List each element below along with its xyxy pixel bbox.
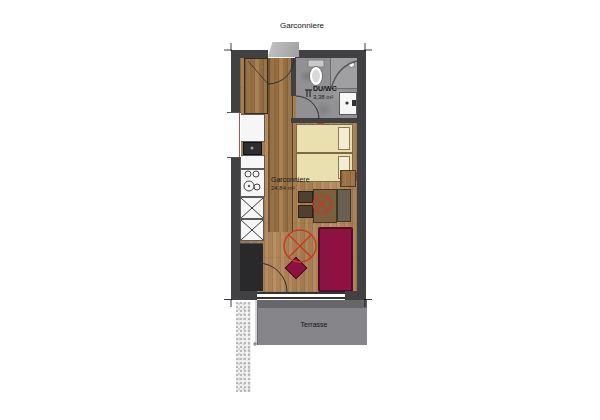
cooktop <box>243 142 262 155</box>
wall-bottom-right <box>345 291 366 300</box>
chair-1 <box>298 191 313 203</box>
sideboard <box>337 189 351 222</box>
shower-head-icon <box>348 61 355 68</box>
wall-bath-vertical <box>291 58 296 96</box>
kitchen-counter-upper <box>240 114 265 142</box>
nightstand <box>340 170 356 187</box>
wall-left-lower <box>231 158 240 300</box>
sofa <box>318 227 353 292</box>
wall-top-right <box>295 50 366 58</box>
kitchen-appliance-2 <box>240 219 264 241</box>
kitchen-counter-mid <box>240 155 265 169</box>
exterior-wall-hatch <box>236 302 251 392</box>
dining-table <box>313 189 337 223</box>
terrace-label: Terrasse <box>290 321 338 328</box>
main-room-area: 24,84 m² <box>271 185 295 191</box>
entrance-landing <box>268 42 299 57</box>
entry-wood-band <box>268 58 293 232</box>
bed-1-pillow <box>338 127 350 150</box>
main-room-label: Garconniere <box>271 176 310 183</box>
bathroom-label: DU/WC <box>313 85 337 92</box>
wall-bath-horizontal <box>291 118 357 123</box>
floor-plan-page: Garconniere <box>0 0 600 420</box>
kitchen-appliance-1 <box>240 197 264 219</box>
window-terrace-door <box>257 292 345 299</box>
bathroom-area: 3,38 m² <box>313 94 333 100</box>
wardrobe <box>244 58 268 114</box>
wall-left-upper <box>231 50 240 112</box>
tall-cabinet <box>240 243 263 291</box>
washbasin <box>339 92 357 115</box>
window-left-red-line <box>239 113 240 157</box>
wall-bottom-left <box>231 291 257 300</box>
kitchen-sink-unit <box>240 169 265 197</box>
wall-right <box>357 50 366 300</box>
chair-2 <box>298 205 313 218</box>
page-title: Garconniere <box>232 21 372 30</box>
